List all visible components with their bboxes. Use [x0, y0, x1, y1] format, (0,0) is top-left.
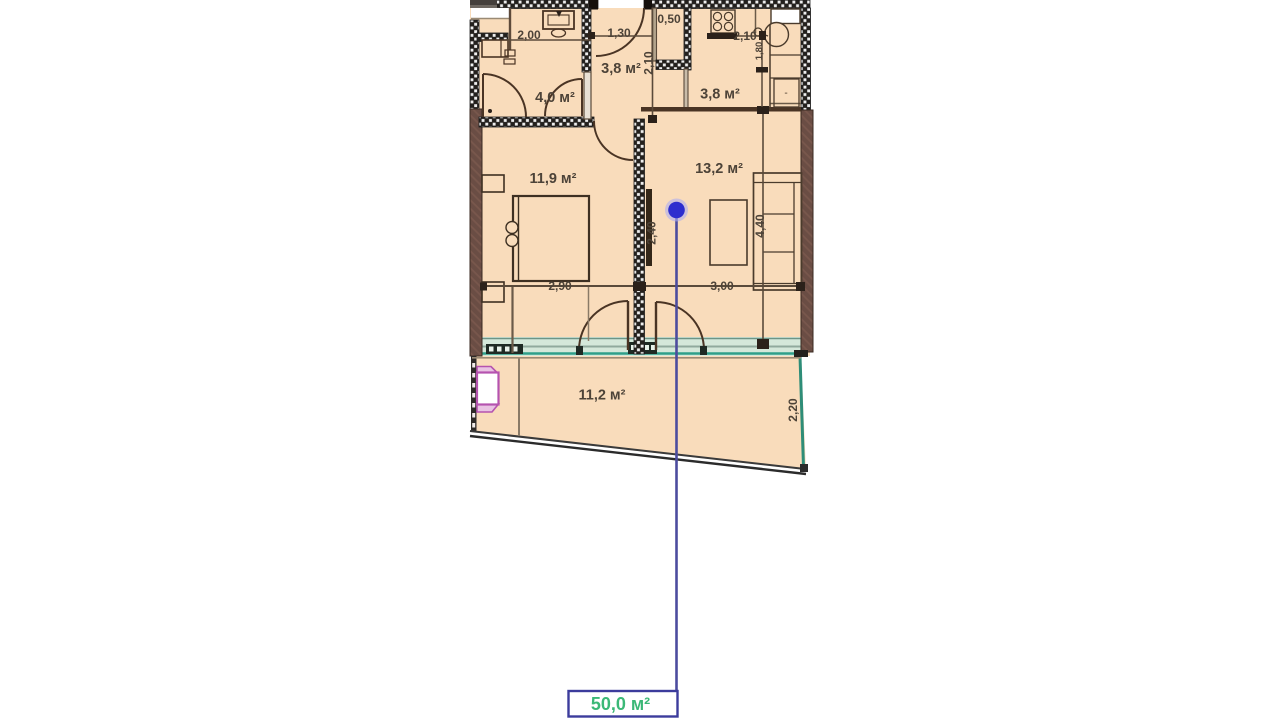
svg-text:3,00: 3,00	[710, 279, 734, 293]
svg-text:2,10: 2,10	[642, 51, 656, 75]
svg-text:4,0 м²: 4,0 м²	[535, 90, 575, 106]
svg-text:4,40: 4,40	[753, 214, 767, 238]
svg-text:13,2 м²: 13,2 м²	[695, 161, 743, 177]
svg-text:2,00: 2,00	[517, 28, 541, 42]
svg-text:0,50: 0,50	[657, 12, 681, 26]
svg-text:2,90: 2,90	[548, 279, 572, 293]
svg-text:1,80: 1,80	[754, 42, 765, 61]
svg-text:1,30: 1,30	[607, 26, 631, 40]
svg-text:2,20: 2,20	[786, 398, 800, 422]
svg-text:11,9 м²: 11,9 м²	[529, 171, 576, 187]
svg-text:50,0 м²: 50,0 м²	[591, 694, 650, 714]
svg-text:11,2 м²: 11,2 м²	[578, 388, 625, 404]
svg-text:2,40: 2,40	[645, 221, 659, 245]
svg-text:3,8 м²: 3,8 м²	[601, 61, 641, 77]
svg-text:2,10: 2,10	[733, 29, 757, 43]
svg-text:3,8 м²: 3,8 м²	[700, 87, 740, 103]
svg-text:-: -	[784, 88, 787, 99]
